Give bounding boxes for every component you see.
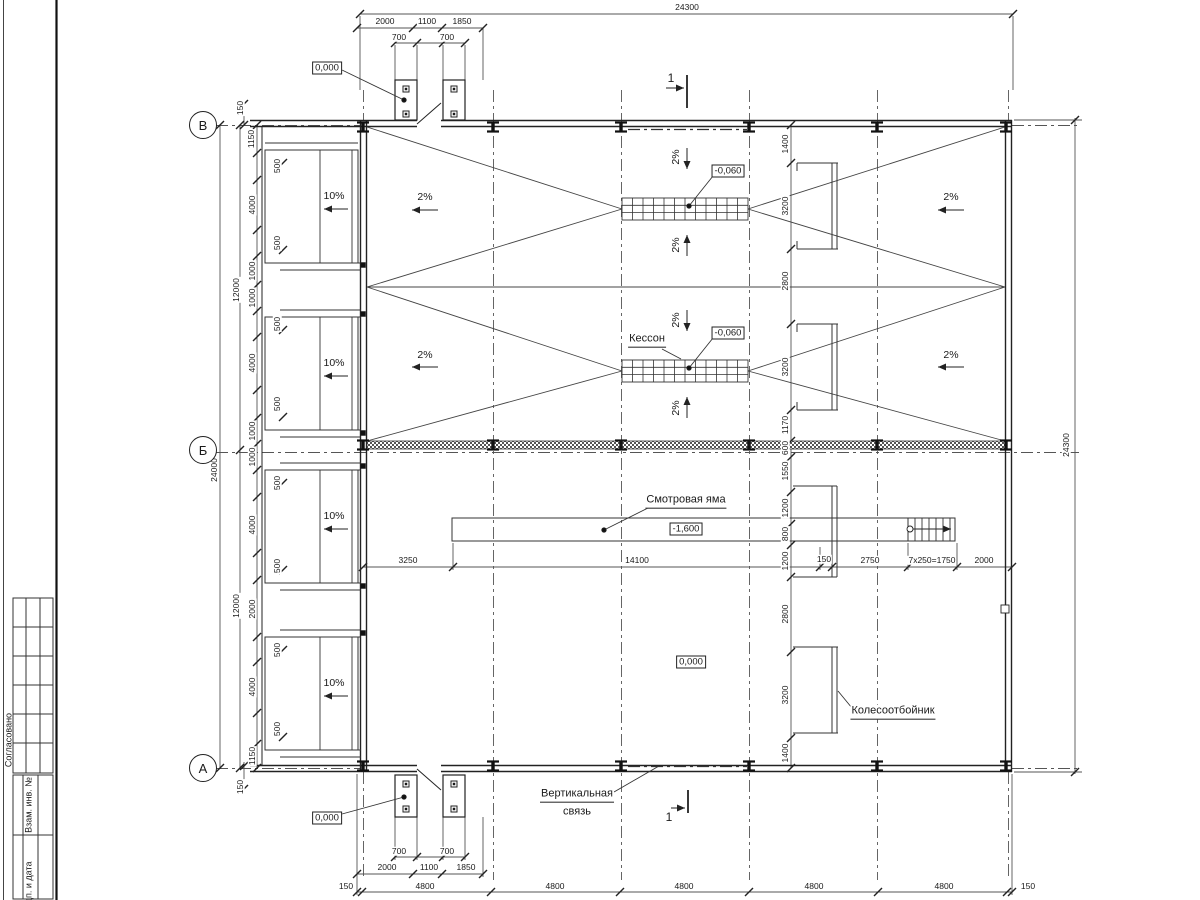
slope-label: 2%: [671, 148, 682, 165]
section-mark-label: 1: [667, 72, 676, 84]
wall-niche: [1001, 605, 1009, 613]
dim-label: 12000: [232, 277, 241, 303]
drawing-canvas: Кессон Смотровая яма Колесоотбойник Верт…: [0, 0, 1200, 900]
dim-label: 12000: [232, 593, 241, 619]
vertical-bracing-label-line1: Вертикальная: [540, 788, 614, 803]
slope-label: 2%: [416, 192, 433, 203]
dim-label: 1200: [781, 498, 790, 519]
elevation-mark: -1,600: [670, 523, 703, 536]
dim-label: 500: [273, 396, 282, 412]
dim-label: 150: [816, 555, 832, 564]
dim-label: 3200: [781, 357, 790, 378]
elevation-mark: -0,060: [712, 165, 745, 178]
dim-label: 500: [273, 558, 282, 574]
dim-label: 4000: [248, 677, 257, 698]
dim-label: 2750: [860, 556, 881, 565]
drainage-lines: [367, 127, 1005, 441]
dim-label: 700: [439, 847, 455, 856]
slope-label: 2%: [671, 236, 682, 253]
gate-leaf-bottom: [417, 769, 441, 790]
caisson-label: Кессон: [628, 333, 666, 348]
elevation-mark: 0,000: [312, 812, 342, 825]
dim-label: 2800: [781, 271, 790, 292]
caisson-grates: [622, 198, 748, 382]
dim-label: 700: [439, 33, 455, 42]
dim-label: 2800: [781, 604, 790, 625]
dim-label: 3200: [781, 685, 790, 706]
slope-label: 10%: [322, 511, 345, 522]
dim-label: 3250: [398, 556, 419, 565]
dimension-lines: [220, 14, 1082, 895]
dim-label: 150: [338, 882, 354, 891]
dim-label: 4800: [934, 882, 955, 891]
slope-label: 10%: [322, 358, 345, 369]
grid-axis-circle: А: [189, 754, 217, 782]
dim-label: 500: [273, 235, 282, 251]
dim-label: 700: [391, 33, 407, 42]
dim-label: 4800: [804, 882, 825, 891]
dim-label: 4000: [248, 515, 257, 536]
dim-label: 150: [1020, 882, 1036, 891]
slope-label: 2%: [671, 399, 682, 416]
dim-label: 14100: [624, 556, 650, 565]
dim-label: 1000: [248, 261, 257, 282]
slope-label: 2%: [942, 350, 959, 361]
slope-label: 2%: [942, 192, 959, 203]
dim-label: 2000: [377, 863, 398, 872]
dim-label: 600: [781, 440, 790, 456]
dim-label: 1850: [452, 17, 473, 26]
titleblock-signature: Подп. и дата: [25, 861, 34, 900]
titleblock-replacement: Взам. инв. №: [25, 777, 34, 833]
gate-leaf-top: [417, 103, 441, 124]
plan-linework: [0, 0, 1200, 900]
section-mark-label: 1: [665, 811, 674, 823]
dim-label: 1100: [417, 17, 437, 26]
dim-label: 500: [273, 642, 282, 658]
elevation-mark: 0,000: [312, 62, 342, 75]
grid-axis-circle: Б: [189, 436, 217, 464]
dim-label: 2000: [248, 599, 257, 620]
dim-label: 1100: [419, 863, 439, 872]
wheel-guard-label: Колесоотбойник: [850, 705, 935, 720]
wheel-guard-shape: [793, 647, 838, 733]
dim-label: 1150: [248, 746, 257, 766]
interior-wall-b: [367, 441, 1005, 449]
slope-label: 2%: [416, 350, 433, 361]
dim-label: 1150: [247, 129, 256, 149]
dim-label: 4800: [545, 882, 566, 891]
dim-label: 24300: [674, 3, 700, 12]
elevation-mark: 0,000: [676, 656, 706, 669]
grid-axis-circle: В: [189, 111, 217, 139]
dim-label: 2000: [974, 556, 995, 565]
slope-label: 2%: [671, 311, 682, 328]
dim-label: 1400: [781, 134, 790, 155]
inspection-pit-outline: [452, 518, 955, 541]
dim-label: 4800: [415, 882, 436, 891]
slope-label: 10%: [322, 678, 345, 689]
vertical-bracing-label-line2: связь: [562, 806, 592, 819]
dim-label: 1200: [781, 551, 790, 572]
dim-label: 1850: [456, 863, 477, 872]
elevation-mark: -0,060: [712, 327, 745, 340]
dim-label: 4000: [248, 195, 257, 216]
dim-label: 500: [273, 158, 282, 174]
dim-label: 700: [391, 847, 407, 856]
dim-label: 2000: [375, 17, 396, 26]
dim-label: 500: [273, 475, 282, 491]
dim-label: 500: [273, 721, 282, 737]
slope-label: 10%: [322, 191, 345, 202]
dim-label: 1000: [248, 447, 257, 468]
dim-label: 3200: [781, 196, 790, 217]
dim-label: 150: [236, 100, 245, 116]
dim-label: 800: [781, 526, 790, 542]
dim-label: 150: [236, 779, 245, 795]
dim-label: 1000: [248, 421, 257, 442]
dim-label: 1170: [781, 415, 790, 435]
inspection-pit-label: Смотровая яма: [645, 494, 726, 509]
dim-label: 1000: [248, 288, 257, 309]
dim-label: 7x250=1750: [907, 556, 956, 565]
dim-label: 1400: [781, 743, 790, 764]
dim-label: 24300: [1062, 432, 1071, 458]
dim-label: 4000: [248, 353, 257, 374]
titleblock-approved: Согласовано: [5, 713, 14, 767]
dim-label: 500: [273, 316, 282, 332]
dim-label: 1550: [781, 461, 790, 482]
dim-label: 4800: [674, 882, 695, 891]
